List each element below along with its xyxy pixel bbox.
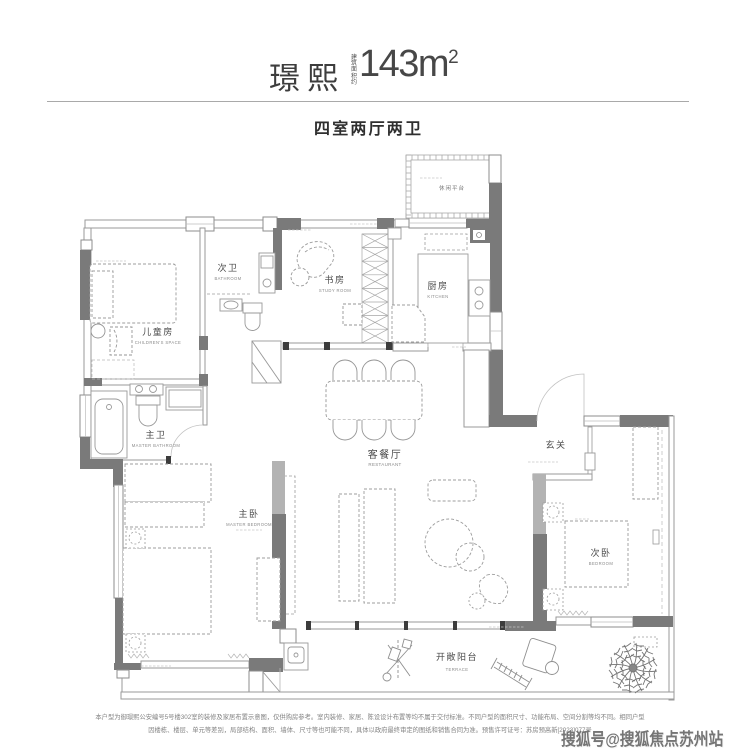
svg-text:厨房: 厨房 [427,280,448,291]
svg-text:客餐厅: 客餐厅 [368,448,403,461]
svg-text:MASTER BATHROOM: MASTER BATHROOM [132,443,181,448]
svg-text:主卧: 主卧 [238,508,259,519]
svg-text:玄关: 玄关 [545,439,566,450]
svg-text:儿童房: 儿童房 [142,326,174,337]
svg-text:次卫: 次卫 [217,262,238,273]
svg-text:BEDROOM: BEDROOM [589,561,614,566]
svg-text:次卧: 次卧 [590,547,611,558]
svg-text:MASTER BEDROOM: MASTER BEDROOM [226,522,272,527]
svg-text:RESTAURANT: RESTAURANT [368,462,401,467]
svg-text:休闲平台: 休闲平台 [439,184,465,192]
svg-text:STUDY ROOM: STUDY ROOM [319,288,351,293]
svg-text:BATHROOM: BATHROOM [214,276,241,281]
svg-text:CHILDREN'S SPACE: CHILDREN'S SPACE [135,340,181,345]
svg-text:开敞阳台: 开敞阳台 [436,651,478,662]
svg-text:KITCHEN: KITCHEN [427,294,448,299]
svg-text:TERRACE: TERRACE [446,667,469,672]
svg-text:书房: 书房 [324,274,345,285]
svg-text:主卫: 主卫 [145,429,166,440]
